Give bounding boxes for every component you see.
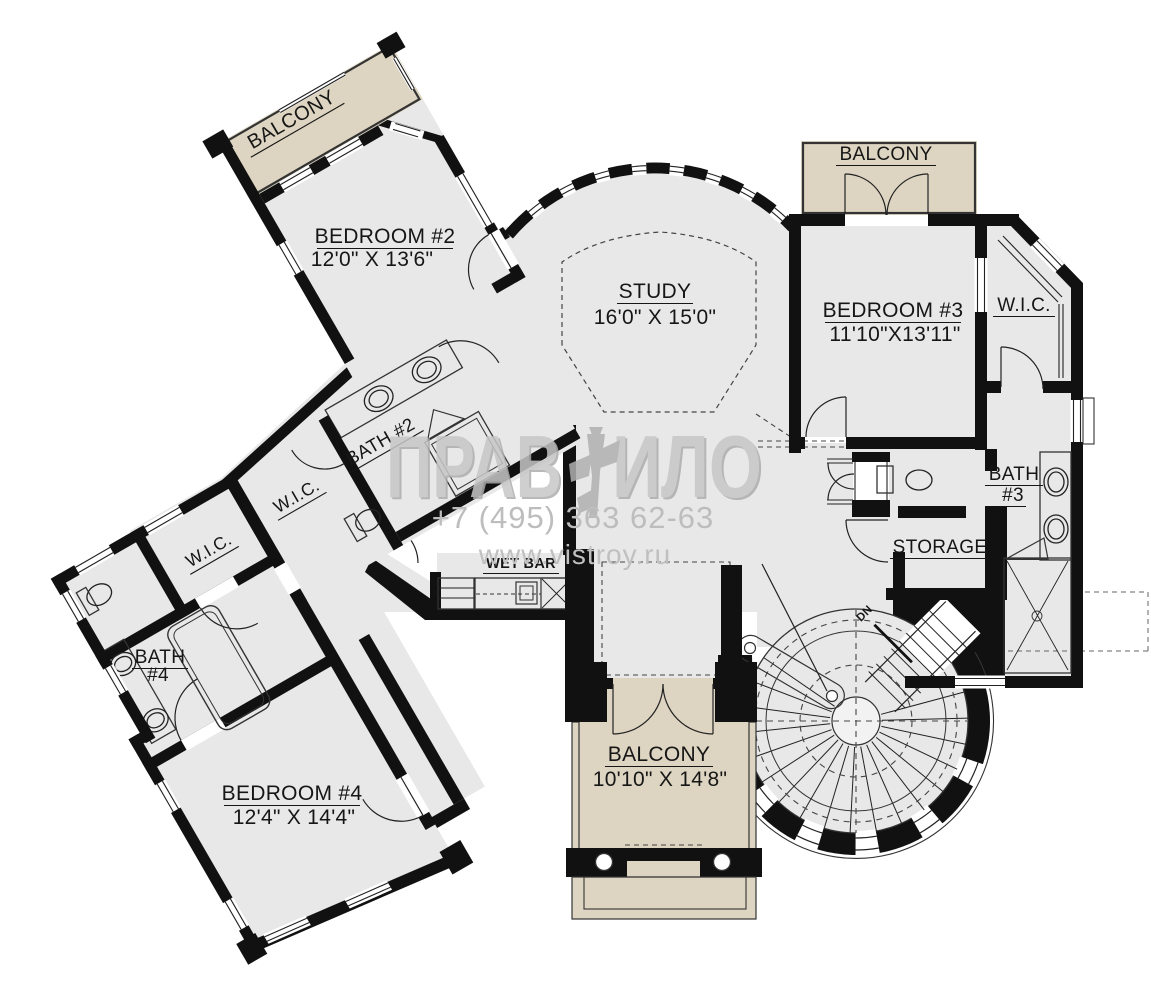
svg-text:BEDROOM #4: BEDROOM #4 xyxy=(222,782,363,805)
svg-text:STORAGE: STORAGE xyxy=(893,537,988,558)
svg-text:BEDROOM #3: BEDROOM #3 xyxy=(823,299,964,322)
svg-text:BEDROOM #2: BEDROOM #2 xyxy=(315,225,456,248)
svg-text:BATH: BATH xyxy=(989,464,1039,485)
svg-text:BALCONY: BALCONY xyxy=(608,743,710,766)
svg-text:10'10" X 14'8": 10'10" X 14'8" xyxy=(593,768,728,791)
svg-text:W.I.C.: W.I.C. xyxy=(997,295,1051,316)
svg-text:12'4" X 14'4": 12'4" X 14'4" xyxy=(233,806,356,829)
svg-text:12'0" X 13'6": 12'0" X 13'6" xyxy=(311,248,434,271)
svg-text:www.vistroy.ru: www.vistroy.ru xyxy=(478,539,671,570)
svg-text:16'0" X 15'0": 16'0" X 15'0" xyxy=(594,306,717,329)
svg-text:BALCONY: BALCONY xyxy=(840,144,933,165)
svg-text:+7 (495) 363 62-63: +7 (495) 363 62-63 xyxy=(432,500,715,535)
svg-text:STUDY: STUDY xyxy=(619,280,692,303)
svg-text:#3: #3 xyxy=(1002,485,1024,506)
svg-text:#4: #4 xyxy=(147,665,169,686)
svg-text:11'10"X13'11": 11'10"X13'11" xyxy=(829,323,960,346)
